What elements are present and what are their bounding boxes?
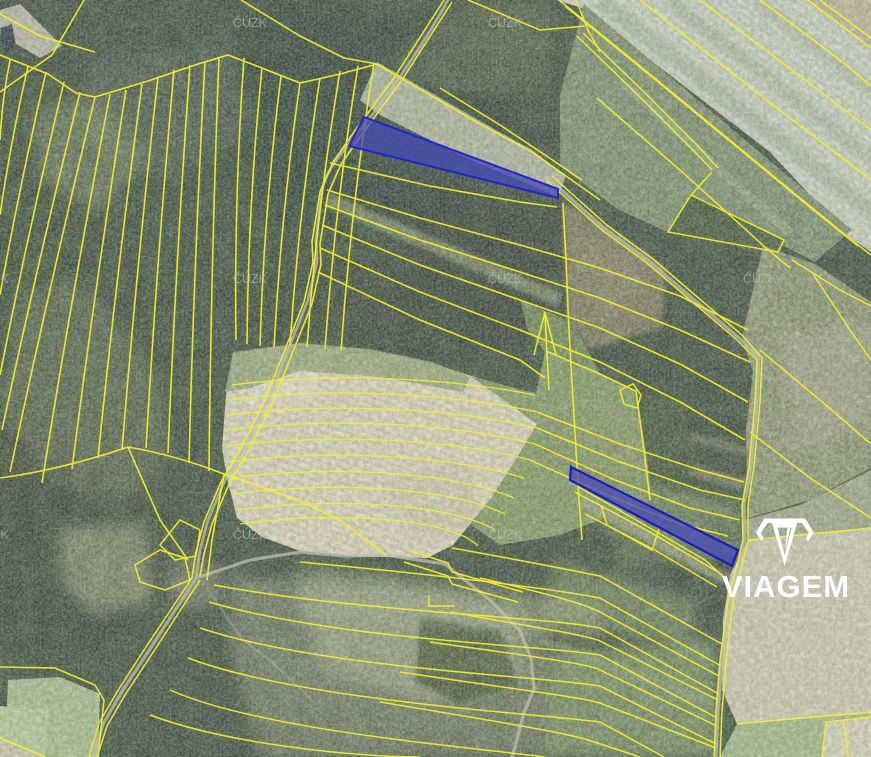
svg-text:ČÚZK: ČÚZK	[488, 271, 523, 286]
svg-text:ČÚZK: ČÚZK	[488, 527, 523, 542]
svg-text:ČÚZK: ČÚZK	[233, 271, 268, 286]
svg-text:ČÚZK: ČÚZK	[233, 15, 268, 30]
svg-text:ČÚZK: ČÚZK	[0, 271, 10, 286]
svg-text:ČÚZK: ČÚZK	[743, 271, 778, 286]
svg-text:ČÚZK: ČÚZK	[743, 15, 778, 30]
svg-text:ČÚZK: ČÚZK	[0, 527, 10, 542]
svg-text:ČÚZK: ČÚZK	[488, 15, 523, 30]
svg-text:ČÚZK: ČÚZK	[0, 15, 10, 30]
svg-text:ČÚZK: ČÚZK	[233, 527, 268, 542]
svg-text:VIAGEM: VIAGEM	[722, 569, 850, 604]
